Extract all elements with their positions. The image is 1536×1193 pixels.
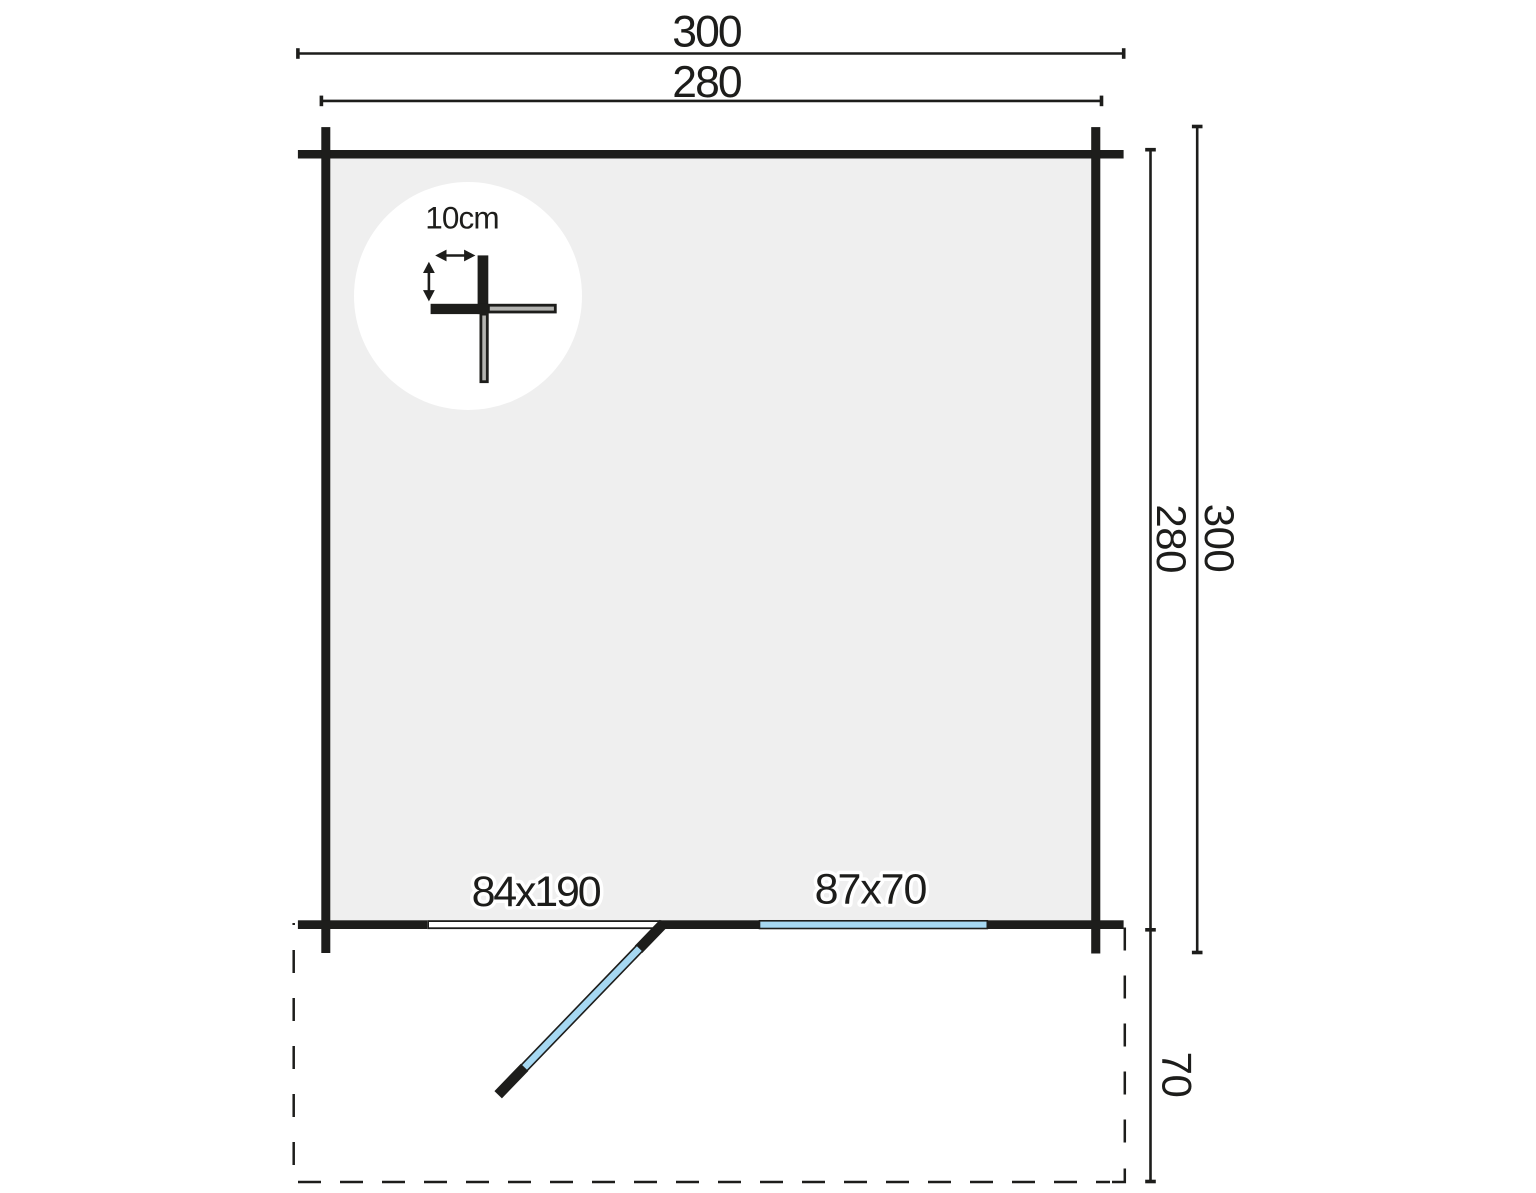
svg-text:10cm: 10cm: [425, 200, 498, 236]
svg-text:300: 300: [1196, 504, 1243, 573]
svg-text:84x190: 84x190: [472, 868, 601, 916]
svg-text:280: 280: [1148, 504, 1195, 573]
svg-text:300: 300: [672, 8, 742, 57]
svg-text:87x70: 87x70: [815, 866, 927, 914]
svg-text:70: 70: [1153, 1052, 1200, 1098]
svg-text:280: 280: [672, 58, 742, 107]
